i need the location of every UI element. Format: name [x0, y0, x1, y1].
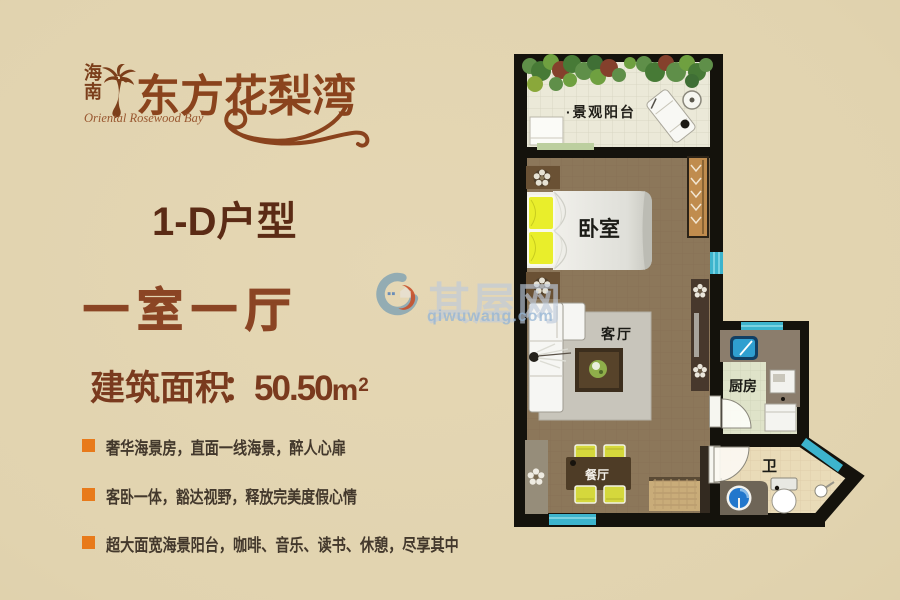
svg-text:厨房: 厨房	[729, 378, 757, 394]
svg-text:卧室: 卧室	[578, 217, 620, 241]
svg-text:·景观阳台: ·景观阳台	[566, 104, 636, 120]
svg-text:卫: 卫	[762, 458, 777, 475]
svg-text:餐厅: 餐厅	[585, 467, 609, 482]
svg-text:客厅: 客厅	[600, 326, 633, 342]
